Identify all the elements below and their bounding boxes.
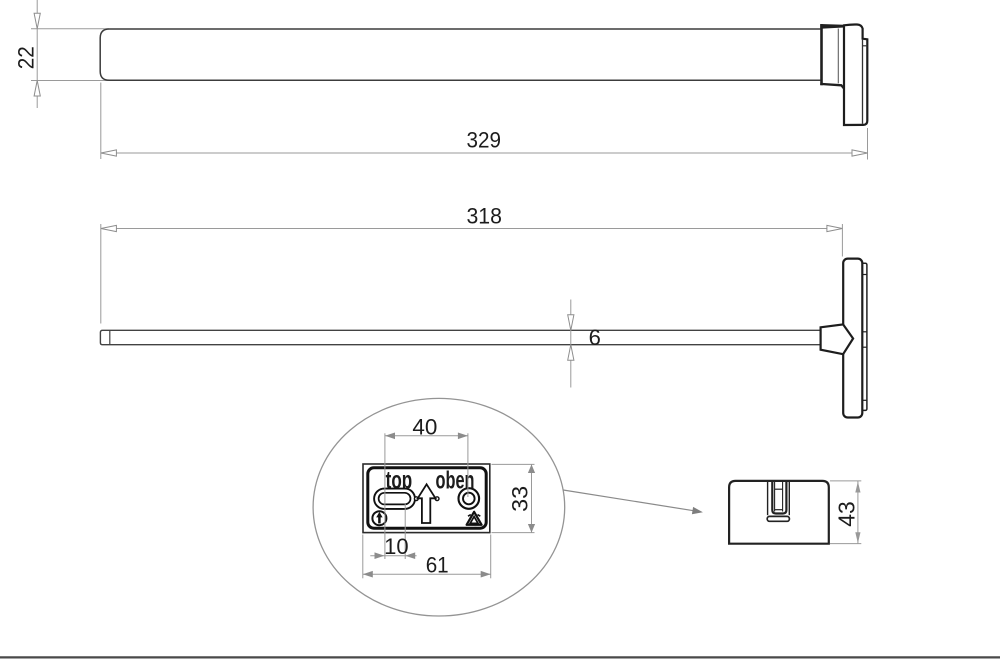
svg-text:40: 40: [412, 415, 437, 440]
svg-text:61: 61: [426, 553, 449, 578]
svg-text:33: 33: [507, 486, 532, 512]
svg-text:10: 10: [384, 534, 409, 559]
svg-text:6: 6: [589, 325, 601, 350]
svg-text:329: 329: [467, 128, 502, 153]
svg-text:22: 22: [13, 46, 38, 69]
svg-text:318: 318: [466, 203, 502, 228]
svg-text:43: 43: [834, 501, 860, 527]
